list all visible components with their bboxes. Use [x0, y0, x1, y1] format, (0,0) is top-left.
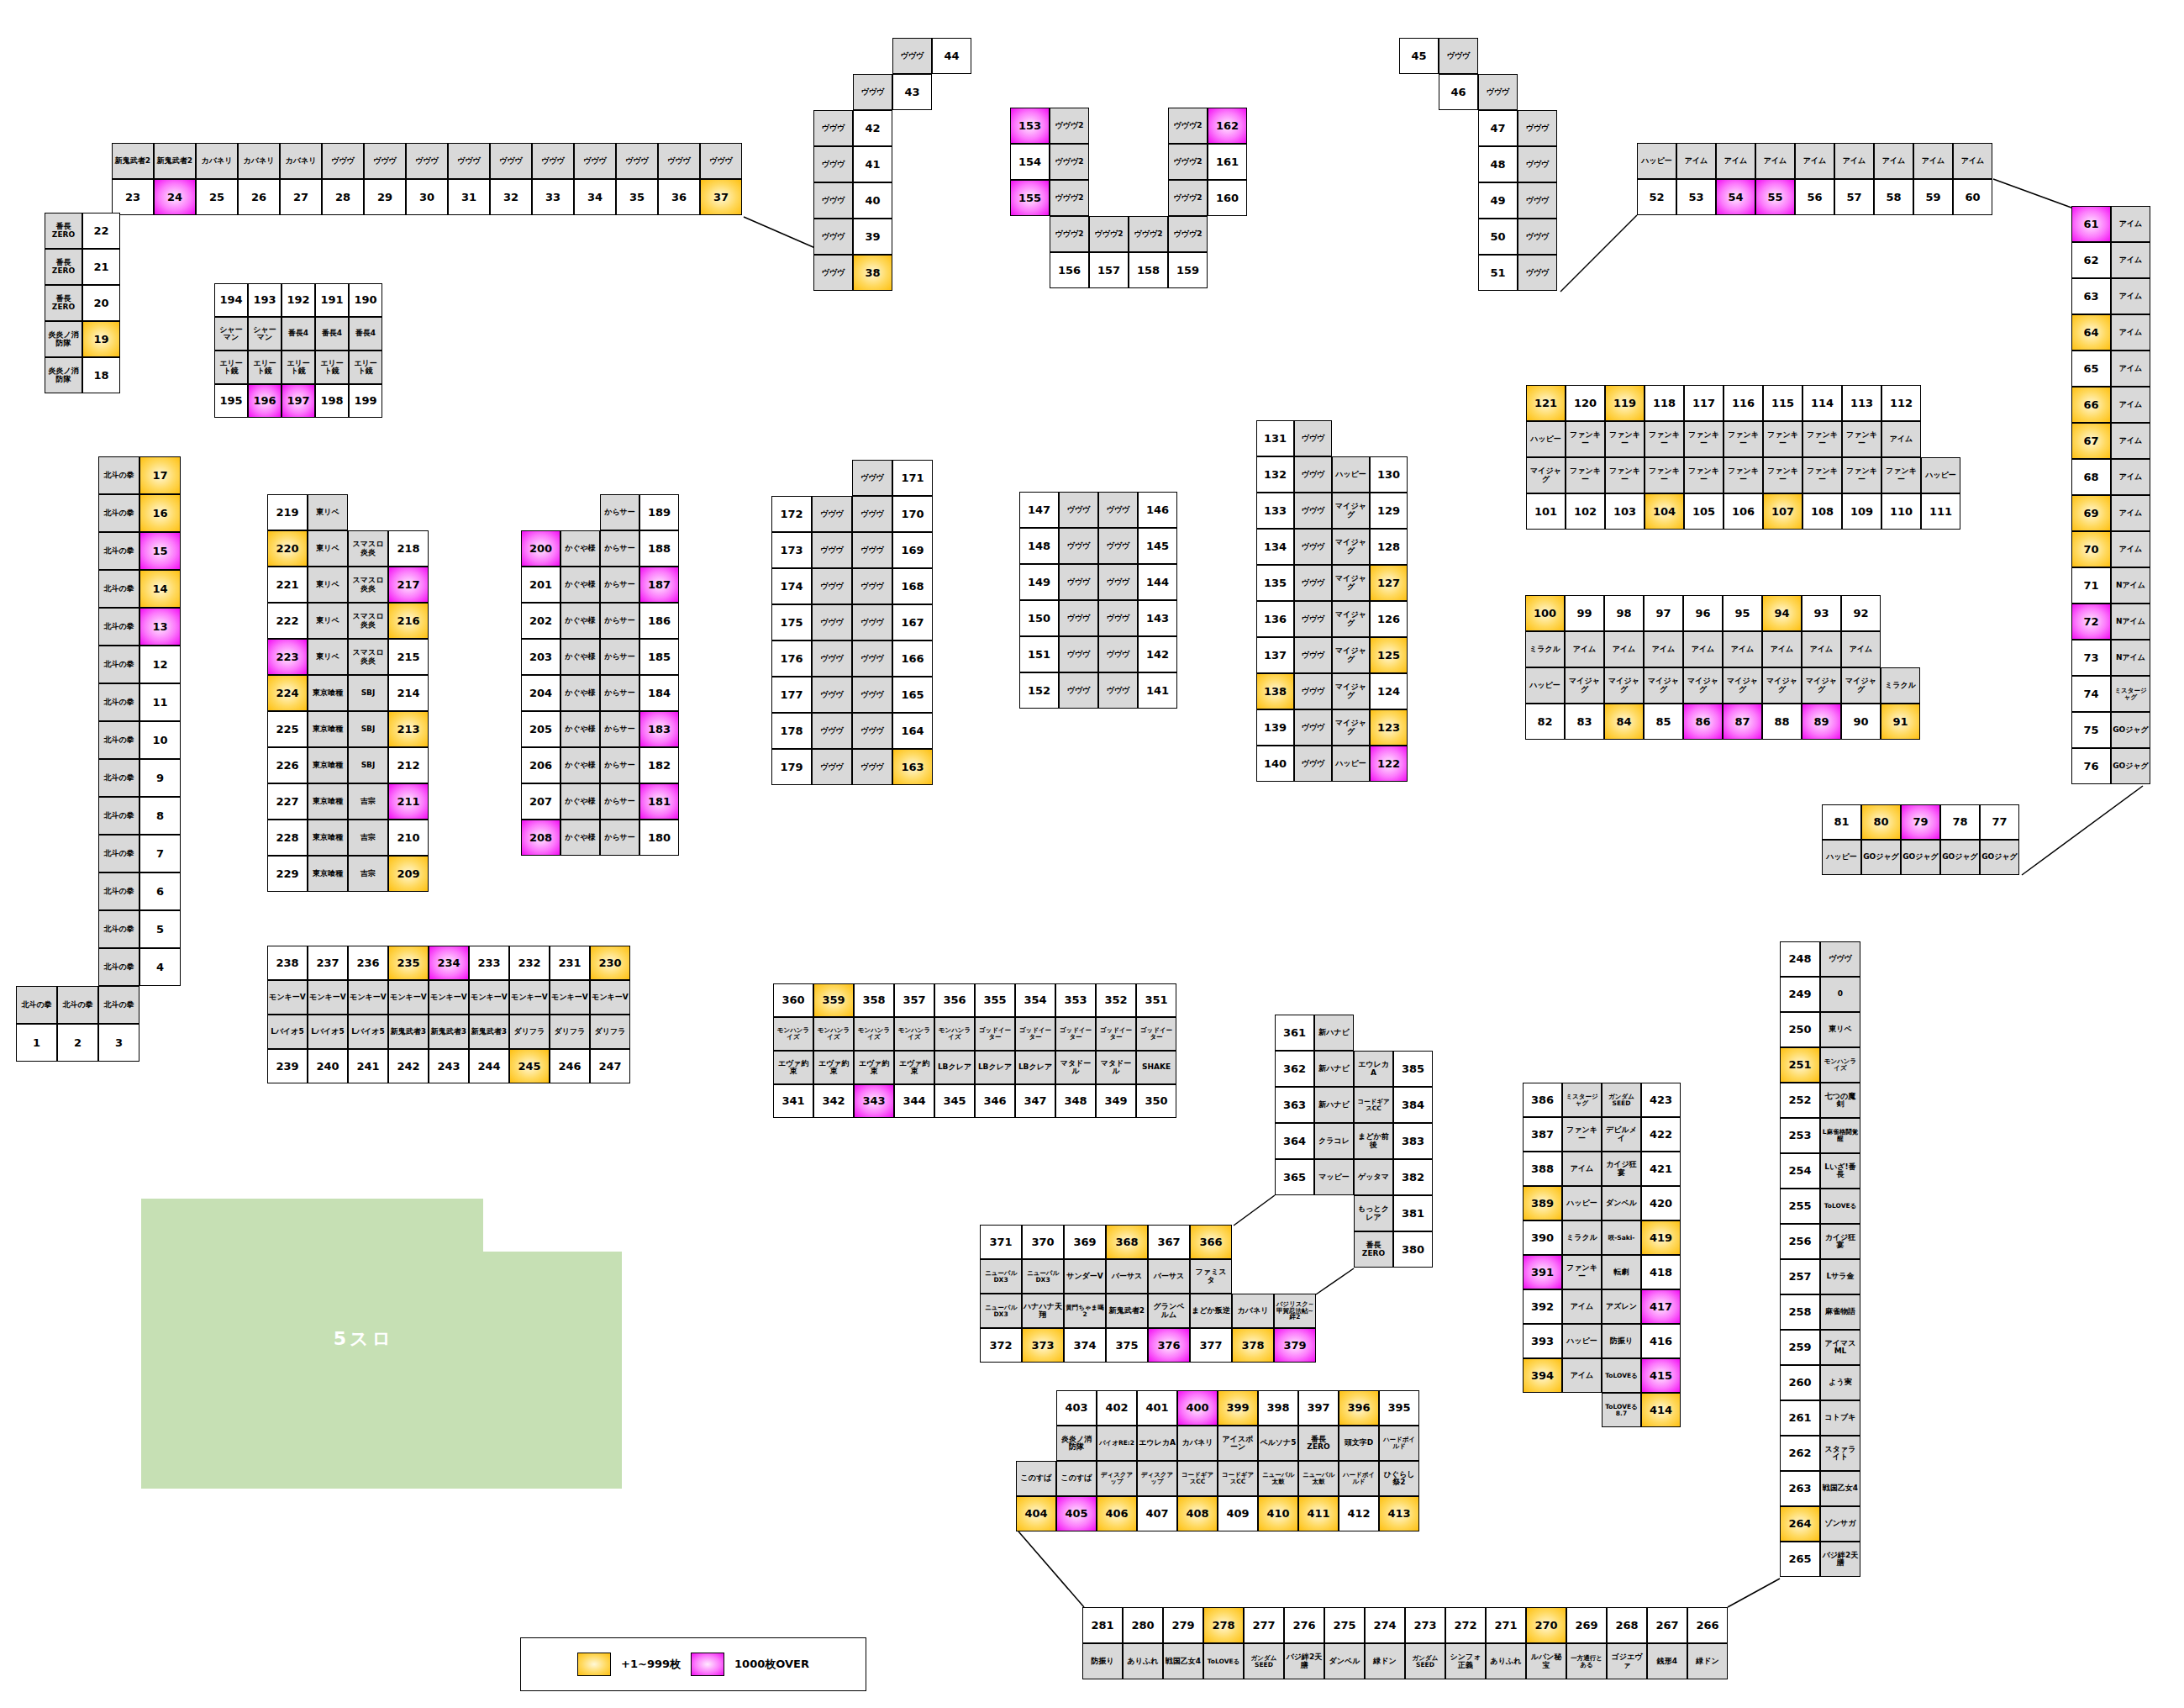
machine-title-cell: アイム	[2111, 423, 2150, 459]
machine-title-cell: ファンキー	[1763, 457, 1802, 493]
machine-number-cell: 186	[639, 603, 679, 639]
machine-number-cell: 251	[1780, 1047, 1820, 1083]
machine-title-cell: かぐや様	[560, 747, 600, 783]
machine-title-cell: バジリスク~甲賀忍法帖~絆2	[1274, 1294, 1316, 1328]
machine-title-cell: 北斗の拳	[57, 986, 98, 1024]
machine-title-cell: ToLOVEる	[1203, 1643, 1244, 1679]
machine-number-cell: 26	[238, 179, 280, 215]
machine-number-cell: 176	[771, 640, 812, 677]
machine-title-cell: モンキーV	[590, 980, 630, 1015]
machine-title-cell: からサー	[600, 494, 639, 530]
machine-title-cell: モンキーV	[550, 980, 590, 1015]
machine-title-cell: 吉宗	[348, 783, 388, 820]
machine-number-cell: 342	[813, 1084, 854, 1118]
machine-number-cell: 381	[1393, 1195, 1433, 1231]
machine-number-cell: 353	[1055, 983, 1096, 1017]
machine-number-cell: 60	[1953, 179, 1992, 215]
machine-number-cell: 205	[521, 711, 560, 747]
machine-title-cell: ヴヴヴ	[892, 38, 932, 74]
machine-title-cell: ハッピー	[1332, 456, 1370, 493]
machine-title-cell: ヴヴヴ	[813, 182, 853, 219]
machine-number-cell: 3	[98, 1024, 139, 1062]
machine-title-cell: Nアイム	[2111, 567, 2150, 604]
machine-number-cell: 242	[388, 1049, 429, 1083]
machine-title-cell: エリート鏡	[315, 351, 349, 384]
machine-number-cell: 82	[1525, 704, 1565, 740]
machine-number-cell: 280	[1123, 1607, 1163, 1643]
machine-number-cell: 101	[1526, 493, 1566, 530]
machine-title-cell: ダリフラ	[550, 1015, 590, 1049]
machine-number-cell: 123	[1370, 709, 1408, 746]
machine-title-cell: ヴヴヴ	[1098, 672, 1138, 709]
machine-number-cell: 276	[1284, 1607, 1324, 1643]
machine-number-cell: 221	[267, 567, 308, 603]
machine-number-cell: 55	[1755, 179, 1795, 215]
machine-number-cell: 175	[771, 604, 812, 640]
machine-title-cell: アイム	[1562, 1358, 1602, 1393]
machine-title-cell: 北斗の拳	[98, 835, 139, 872]
machine-number-cell: 414	[1641, 1393, 1681, 1427]
machine-number-cell: 15	[139, 532, 181, 570]
machine-title-cell: アイム	[2111, 351, 2150, 387]
machine-title-cell: LBクレア	[1015, 1051, 1055, 1084]
machine-number-cell: 68	[2071, 459, 2111, 495]
machine-title-cell: エリート鏡	[349, 351, 382, 384]
machine-title-cell: シンフォ正義	[1445, 1643, 1486, 1679]
machine-number-cell: 224	[267, 675, 308, 711]
machine-number-cell: 271	[1486, 1607, 1526, 1643]
machine-title-cell: ヴヴヴ	[813, 219, 853, 255]
machine-title-cell: ヴヴヴ	[448, 143, 490, 179]
machine-number-cell: 256	[1780, 1224, 1820, 1259]
machine-number-cell: 76	[2071, 748, 2111, 784]
machine-number-cell: 397	[1298, 1390, 1339, 1426]
machine-title-cell: ヴヴヴ	[658, 143, 700, 179]
machine-title-cell: ヴヴヴ	[812, 496, 852, 532]
machine-number-cell: 377	[1190, 1328, 1232, 1363]
machine-title-cell: ヴヴヴ	[1294, 601, 1332, 637]
machine-title-cell: かぐや様	[560, 783, 600, 820]
machine-number-cell: 352	[1096, 983, 1136, 1017]
machine-number-cell: 264	[1780, 1506, 1820, 1542]
machine-title-cell: コトブキ	[1820, 1400, 1860, 1436]
machine-title-cell: ヴヴヴ	[852, 604, 892, 640]
machine-number-cell: 376	[1148, 1328, 1190, 1363]
machine-number-cell: 350	[1136, 1084, 1176, 1118]
machine-number-cell: 170	[892, 496, 933, 532]
machine-number-cell: 31	[448, 179, 490, 215]
machine-number-cell: 124	[1370, 673, 1408, 709]
machine-number-cell: 270	[1526, 1607, 1566, 1643]
machine-number-cell: 402	[1097, 1390, 1137, 1426]
machine-number-cell: 20	[82, 285, 120, 321]
machine-title-cell: ダンベル	[1324, 1643, 1365, 1679]
machine-title-cell: 番長ZERO	[45, 285, 82, 321]
machine-title-cell: からサー	[600, 567, 639, 603]
machine-title-cell: カイジ狂宴	[1602, 1152, 1641, 1186]
machine-number-cell: 273	[1405, 1607, 1445, 1643]
machine-number-cell: 146	[1138, 492, 1177, 528]
machine-number-cell: 209	[388, 856, 429, 892]
machine-number-cell: 6	[139, 872, 181, 910]
machine-title-cell: ヴヴヴ	[812, 640, 852, 677]
machine-title-cell: ファミスタ	[1190, 1259, 1232, 1294]
machine-number-cell: 404	[1016, 1496, 1056, 1531]
machine-number-cell: 226	[267, 747, 308, 783]
machine-number-cell: 115	[1763, 385, 1802, 421]
machine-title-cell: ヴヴヴ	[1059, 564, 1098, 600]
machine-title-cell: ファンキー	[1562, 1255, 1602, 1289]
machine-title-cell: 東京喰種	[308, 820, 348, 856]
machine-number-cell: 343	[854, 1084, 894, 1118]
machine-number-cell: 400	[1177, 1390, 1218, 1426]
machine-title-cell: バイオRE:2	[1097, 1426, 1137, 1461]
machine-number-cell: 383	[1393, 1123, 1433, 1159]
machine-title-cell: モンキーV	[469, 980, 509, 1015]
machine-title-cell: エリート鏡	[248, 351, 282, 384]
machine-title-cell: ヴヴヴ	[1478, 74, 1518, 110]
machine-title-cell: Lいざ!番長	[1820, 1153, 1860, 1189]
machine-title-cell: マタドール	[1096, 1051, 1136, 1084]
machine-number-cell: 164	[892, 713, 933, 749]
machine-number-cell: 139	[1256, 709, 1294, 746]
machine-title-cell: ニューパル太鼓	[1258, 1461, 1298, 1496]
machine-number-cell: 212	[388, 747, 429, 783]
machine-number-cell: 247	[590, 1049, 630, 1083]
machine-title-cell: からサー	[600, 639, 639, 675]
machine-title-cell: ヴヴヴ	[1518, 110, 1557, 146]
machine-title-cell: カバネリ	[238, 143, 280, 179]
machine-number-cell: 263	[1780, 1471, 1820, 1506]
machine-title-cell: マタドール	[1055, 1051, 1096, 1084]
machine-number-cell: 374	[1064, 1328, 1106, 1363]
machine-number-cell: 358	[854, 983, 894, 1017]
machine-title-cell: アイム	[2111, 495, 2150, 531]
machine-number-cell: 269	[1566, 1607, 1607, 1643]
machine-number-cell: 258	[1780, 1294, 1820, 1330]
machine-title-cell: 頭文字D	[1339, 1426, 1379, 1461]
machine-title-cell: ヴヴヴ	[1098, 600, 1138, 636]
machine-title-cell: ひぐらし祭2	[1379, 1461, 1419, 1496]
legend-yellow-label: +1~999枚	[621, 1657, 681, 1672]
machine-title-cell: LBクレア	[975, 1051, 1015, 1084]
machine-title-cell: 炎炎ノ消防隊	[45, 321, 82, 357]
machine-title-cell: ゴッドイーター	[975, 1017, 1015, 1051]
machine-number-cell: 25	[196, 179, 238, 215]
machine-number-cell: 108	[1802, 493, 1842, 530]
machine-title-cell: モンハンライズ	[1820, 1047, 1860, 1083]
machine-number-cell: 421	[1641, 1152, 1681, 1186]
machine-title-cell: 北斗の拳	[98, 948, 139, 986]
machine-title-cell: ハッピー	[1562, 1186, 1602, 1220]
machine-title-cell: ダンベル	[1602, 1186, 1641, 1220]
machine-title-cell: かぐや様	[560, 530, 600, 567]
machine-number-cell: 348	[1055, 1084, 1096, 1118]
machine-number-cell: 382	[1393, 1159, 1433, 1195]
machine-number-cell: 133	[1256, 493, 1294, 529]
machine-title-cell: ヴヴヴ2	[1050, 180, 1089, 216]
machine-title-cell: カバネリ	[1177, 1426, 1218, 1461]
machine-title-cell: ガンダムSEED	[1602, 1083, 1641, 1117]
machine-title-cell: ヴヴヴ	[812, 604, 852, 640]
machine-number-cell: 144	[1138, 564, 1177, 600]
machine-number-cell: 192	[282, 283, 315, 317]
machine-number-cell: 112	[1881, 385, 1921, 421]
machine-title-cell: LBクレア	[934, 1051, 975, 1084]
machine-title-cell: ヴヴヴ	[490, 143, 532, 179]
machine-title-cell: ハッピー	[1562, 1324, 1602, 1358]
machine-number-cell: 198	[315, 384, 349, 418]
machine-number-cell: 163	[892, 749, 933, 785]
machine-title-cell: 戦国乙女4	[1163, 1643, 1203, 1679]
machine-title-cell: ハナハナ天翔	[1022, 1294, 1064, 1328]
machine-number-cell: 380	[1393, 1231, 1433, 1268]
machine-number-cell: 148	[1019, 528, 1059, 564]
machine-number-cell: 138	[1256, 673, 1294, 709]
machine-title-cell: ゲッタマ	[1354, 1159, 1393, 1195]
machine-title-cell: GOジャグ	[1980, 840, 2019, 875]
machine-number-cell: 367	[1148, 1225, 1190, 1259]
machine-title-cell: アイム	[1874, 143, 1913, 179]
machine-number-cell: 190	[349, 283, 382, 317]
machine-number-cell: 14	[139, 570, 181, 608]
machine-number-cell: 225	[267, 711, 308, 747]
machine-title-cell: ヴヴヴ	[1098, 492, 1138, 528]
machine-number-cell: 150	[1019, 600, 1059, 636]
machine-number-cell: 165	[892, 677, 933, 713]
machine-number-cell: 213	[388, 711, 429, 747]
machine-title-cell: ファンキー	[1605, 457, 1645, 493]
machine-title-cell: 北斗の拳	[98, 797, 139, 835]
machine-number-cell: 180	[639, 820, 679, 856]
machine-number-cell: 85	[1644, 704, 1683, 740]
machine-number-cell: 274	[1365, 1607, 1405, 1643]
machine-title-cell: ToLOVEる	[1820, 1189, 1860, 1224]
machine-number-cell: 161	[1208, 144, 1247, 180]
machine-number-cell: 89	[1802, 704, 1841, 740]
machine-title-cell: ハッピー	[1525, 667, 1565, 704]
machine-number-cell: 97	[1644, 595, 1683, 631]
machine-title-cell: スマスロ炎炎	[348, 603, 388, 639]
machine-number-cell: 93	[1802, 595, 1841, 631]
machine-number-cell: 218	[388, 530, 429, 567]
machine-title-cell: ヴヴヴ	[813, 255, 853, 291]
machine-title-cell: 番長ZERO	[45, 213, 82, 249]
machine-title-cell: ヴヴヴ	[1294, 420, 1332, 456]
machine-title-cell: からサー	[600, 675, 639, 711]
machine-number-cell: 216	[388, 603, 429, 639]
legend-magenta-label: 1000枚OVER	[734, 1657, 809, 1672]
machine-title-cell: モンハンライズ	[894, 1017, 934, 1051]
machine-title-cell: サンダーV	[1064, 1259, 1106, 1294]
machine-title-cell: スタァライト	[1820, 1436, 1860, 1471]
machine-title-cell: アイマスML	[1820, 1330, 1860, 1365]
machine-number-cell: 56	[1795, 179, 1834, 215]
machine-number-cell: 268	[1607, 1607, 1647, 1643]
machine-title-cell: GOジャグ	[1861, 840, 1901, 875]
machine-number-cell: 77	[1980, 804, 2019, 840]
machine-number-cell: 194	[214, 283, 248, 317]
machine-number-cell: 361	[1275, 1015, 1314, 1051]
machine-title-cell: アイム	[1802, 631, 1841, 667]
machine-number-cell: 344	[894, 1084, 934, 1118]
machine-number-cell: 38	[853, 255, 892, 291]
machine-number-cell: 375	[1106, 1328, 1148, 1363]
machine-number-cell: 240	[308, 1049, 348, 1083]
machine-title-cell: ToLOVEる8.7	[1602, 1393, 1641, 1427]
machine-number-cell: 105	[1684, 493, 1724, 530]
machine-number-cell: 275	[1324, 1607, 1365, 1643]
machine-title-cell: ヴヴヴ	[1439, 38, 1478, 74]
machine-number-cell: 110	[1881, 493, 1921, 530]
machine-title-cell: GOジャグ	[1901, 840, 1940, 875]
machine-title-cell: エリート鏡	[214, 351, 248, 384]
machine-number-cell: 181	[639, 783, 679, 820]
machine-number-cell: 168	[892, 568, 933, 604]
machine-title-cell: ニューパルDX3	[1022, 1259, 1064, 1294]
machine-title-cell: 東京喰種	[308, 783, 348, 820]
machine-number-cell: 196	[248, 384, 282, 418]
machine-number-cell: 102	[1566, 493, 1605, 530]
machine-title-cell: 炎炎ノ消防隊	[1056, 1426, 1097, 1461]
machine-number-cell: 8	[139, 797, 181, 835]
machine-number-cell: 359	[813, 983, 854, 1017]
floor-map: 5スロ +1~999枚 1000枚OVER 新鬼武者2新鬼武者2カバネリカバネリ…	[0, 0, 2184, 1708]
machine-title-cell: ファンキー	[1605, 421, 1645, 457]
machine-title-cell: 吉宗	[348, 820, 388, 856]
machine-title-cell: まどか前後	[1354, 1123, 1393, 1159]
machine-number-cell: 233	[469, 946, 509, 980]
machine-title-cell: 東京喰種	[308, 856, 348, 892]
machine-title-cell: 咲-Saki-	[1602, 1220, 1641, 1255]
machine-number-cell: 120	[1566, 385, 1605, 421]
machine-number-cell: 237	[308, 946, 348, 980]
machine-number-cell: 278	[1203, 1607, 1244, 1643]
machine-number-cell: 125	[1370, 637, 1408, 673]
machine-number-cell: 90	[1841, 704, 1881, 740]
machine-title-cell: 北斗の拳	[98, 910, 139, 948]
machine-title-cell: アイム	[1723, 631, 1762, 667]
machine-number-cell: 119	[1605, 385, 1645, 421]
machine-title-cell: エウレカA	[1137, 1426, 1177, 1461]
machine-number-cell: 341	[773, 1084, 813, 1118]
machine-title-cell: ヴヴヴ	[813, 110, 853, 146]
machine-number-cell: 346	[975, 1084, 1015, 1118]
machine-title-cell: アイム	[1676, 143, 1716, 179]
machine-number-cell: 23	[112, 179, 154, 215]
machine-title-cell: ファンキー	[1566, 421, 1605, 457]
machine-number-cell: 262	[1780, 1436, 1820, 1471]
machine-number-cell: 183	[639, 711, 679, 747]
machine-number-cell: 202	[521, 603, 560, 639]
machine-title-cell: 麻雀物語	[1820, 1294, 1860, 1330]
machine-number-cell: 12	[139, 646, 181, 683]
machine-number-cell: 267	[1647, 1607, 1687, 1643]
machine-title-cell: ファンキー	[1645, 421, 1684, 457]
machine-number-cell: 351	[1136, 983, 1176, 1017]
machine-title-cell: よう実	[1820, 1365, 1860, 1400]
machine-number-cell: 98	[1604, 595, 1644, 631]
machine-number-cell: 71	[2071, 567, 2111, 604]
machine-title-cell: マイジャグ	[1565, 667, 1604, 704]
machine-number-cell: 41	[853, 146, 892, 182]
machine-number-cell: 122	[1370, 746, 1408, 782]
machine-number-cell: 393	[1523, 1324, 1562, 1358]
machine-number-cell: 107	[1763, 493, 1802, 530]
machine-title-cell: ToLOVEる	[1602, 1358, 1641, 1393]
machine-title-cell: 緑ドン	[1687, 1643, 1728, 1679]
machine-title-cell: 東リベ	[308, 530, 348, 567]
machine-number-cell: 265	[1780, 1542, 1820, 1577]
machine-number-cell: 58	[1874, 179, 1913, 215]
machine-title-cell: ガンダムSEED	[1244, 1643, 1284, 1679]
machine-title-cell: ヴヴヴ	[1518, 219, 1557, 255]
machine-number-cell: 59	[1913, 179, 1953, 215]
machine-number-cell: 403	[1056, 1390, 1097, 1426]
machine-title-cell: モンハンライズ	[773, 1017, 813, 1051]
machine-title-cell: アイム	[2111, 531, 2150, 567]
machine-title-cell: 北斗の拳	[98, 570, 139, 608]
machine-number-cell: 130	[1370, 456, 1408, 493]
machine-number-cell: 366	[1190, 1225, 1232, 1259]
machine-number-cell: 231	[550, 946, 590, 980]
machine-number-cell: 19	[82, 321, 120, 357]
machine-number-cell: 46	[1439, 74, 1478, 110]
machine-number-cell: 385	[1393, 1051, 1433, 1087]
machine-title-cell: コードギアスCC	[1218, 1461, 1258, 1496]
machine-number-cell: 94	[1762, 595, 1802, 631]
machine-number-cell: 244	[469, 1049, 509, 1083]
machine-number-cell: 87	[1723, 704, 1762, 740]
machine-title-cell: コードギアスCC	[1177, 1461, 1218, 1496]
machine-title-cell: バーサス	[1148, 1259, 1190, 1294]
machine-title-cell: 北斗の拳	[98, 759, 139, 797]
machine-number-cell: 64	[2071, 314, 2111, 351]
machine-number-cell: 259	[1780, 1330, 1820, 1365]
machine-number-cell: 88	[1762, 704, 1802, 740]
machine-title-cell: 番長ZERO	[45, 249, 82, 285]
machine-title-cell: 北斗の拳	[98, 872, 139, 910]
machine-number-cell: 100	[1525, 595, 1565, 631]
machine-number-cell: 173	[771, 532, 812, 568]
machine-number-cell: 260	[1780, 1365, 1820, 1400]
machine-number-cell: 149	[1019, 564, 1059, 600]
machine-number-cell: 239	[267, 1049, 308, 1083]
machine-title-cell: マイジャグ	[1332, 673, 1370, 709]
machine-number-cell: 28	[322, 179, 364, 215]
machine-number-cell: 48	[1478, 146, 1518, 182]
machine-number-cell: 70	[2071, 531, 2111, 567]
machine-title-cell: ファンキー	[1802, 421, 1842, 457]
machine-title-cell: マイジャグ	[1332, 529, 1370, 565]
machine-number-cell: 156	[1050, 252, 1089, 288]
machine-number-cell: 204	[521, 675, 560, 711]
machine-title-cell: アイム	[1755, 143, 1795, 179]
machine-title-cell: エウレカA	[1354, 1051, 1393, 1087]
machine-title-cell: ファンキー	[1881, 457, 1921, 493]
machine-number-cell: 245	[509, 1049, 550, 1083]
machine-title-cell: SBJ	[348, 675, 388, 711]
machine-number-cell: 408	[1177, 1496, 1218, 1531]
machine-title-cell: ヴヴヴ	[700, 143, 742, 179]
machine-number-cell: 18	[82, 357, 120, 393]
machine-title-cell: からサー	[600, 603, 639, 639]
machine-title-cell: モンハンライズ	[813, 1017, 854, 1051]
machine-title-cell: ディスクアップ	[1097, 1461, 1137, 1496]
machine-title-cell: 新鬼武者3	[429, 1015, 469, 1049]
machine-number-cell: 17	[139, 456, 181, 494]
machine-title-cell: SBJ	[348, 747, 388, 783]
